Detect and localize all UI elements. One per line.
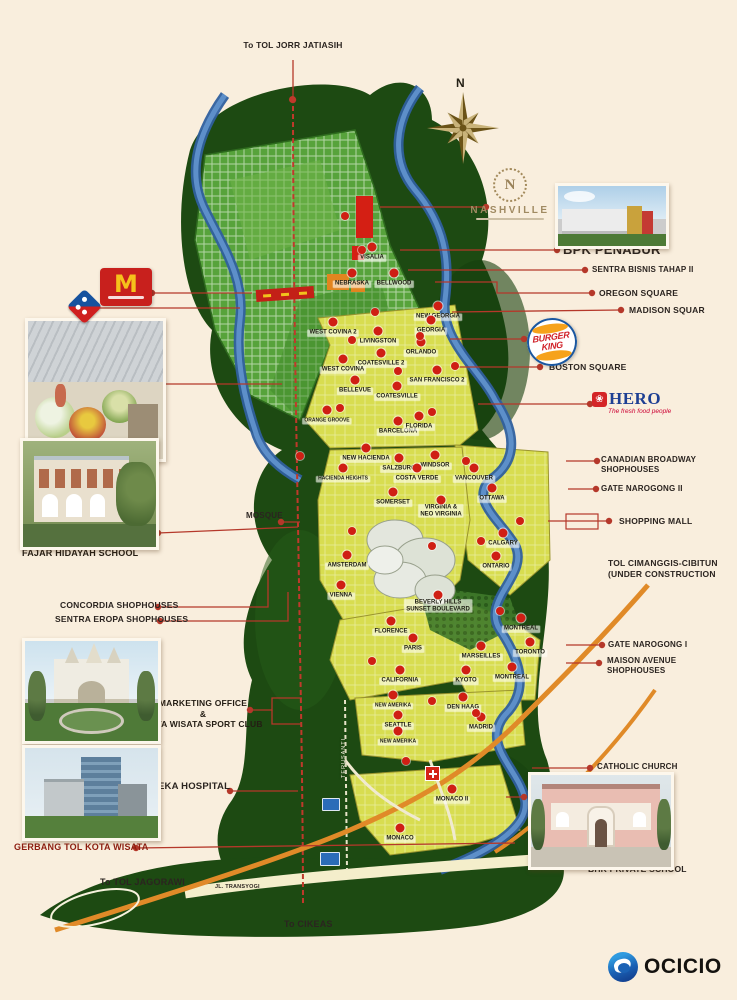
road-sign xyxy=(320,852,340,866)
callout-gerbang-tol: GERBANG TOL KOTA WISATA xyxy=(14,842,148,853)
callout-marketing-office: MARKETING OFFICE&KOTA WISATA SPORT CLUB xyxy=(143,698,262,730)
ocicio-logo: OCICIO xyxy=(608,952,722,982)
map-region-label: COATESVILLE xyxy=(374,394,420,401)
callout-sentra-eropa: SENTRA EROPA SHOPHOUSES xyxy=(55,614,188,625)
region-badge-icon xyxy=(434,302,443,311)
map-region-label: VIRGINIA &NEO VIRGINIA xyxy=(418,504,463,517)
map-region-label: FLORIDA xyxy=(404,424,435,431)
region-badge-icon xyxy=(368,243,377,252)
region-badge-icon xyxy=(329,318,338,327)
region-badge-icon xyxy=(416,332,424,340)
facility-cross-marker xyxy=(425,766,440,781)
fajar-hidayah-school-photo xyxy=(20,438,159,550)
callout-sentra-bisnis: SENTRA BISNIS TAHAP II xyxy=(592,265,694,275)
region-badge-icon xyxy=(437,496,446,505)
region-badge-icon xyxy=(499,529,508,538)
region-badge-icon xyxy=(470,464,479,473)
region-badge-icon xyxy=(394,417,403,426)
region-badge-icon xyxy=(433,366,442,375)
region-badge-icon xyxy=(526,638,535,647)
nashville-emblem-icon: N xyxy=(493,168,527,202)
nashville-wordmark: NASHVILLE xyxy=(455,205,565,216)
region-badge-icon xyxy=(428,542,436,550)
region-badge-icon xyxy=(488,484,497,493)
map-region-label: NEW AMERIKA xyxy=(373,703,413,709)
map-region-label: WINDSOR xyxy=(419,463,452,470)
region-badge-icon xyxy=(395,454,404,463)
region-badge-icon xyxy=(394,711,403,720)
map-region-label: NEW HACIENDA xyxy=(340,456,391,463)
terusan-road-label: TERUSANTI xyxy=(341,738,347,778)
compass-n-label: N xyxy=(456,76,465,90)
map-region-label: SOMERSET xyxy=(374,500,412,507)
region-badge-icon xyxy=(390,269,399,278)
callout-concordia: CONCORDIA SHOPHOUSES xyxy=(60,600,178,611)
map-region-label: VANCOUVER xyxy=(453,476,495,483)
masterplan-poster: To TOL JORR JATIASIHBPK PENABURSENTRA BI… xyxy=(0,0,737,1000)
callout-shopping-mall: SHOPPING MALL xyxy=(619,516,692,527)
map-region-label: MONACO xyxy=(384,836,415,843)
region-badge-icon xyxy=(517,614,526,623)
region-badge-icon xyxy=(348,269,357,278)
region-badge-icon xyxy=(394,727,403,736)
region-badge-icon xyxy=(428,408,436,416)
region-badge-icon xyxy=(371,308,379,316)
nashville-logo: N NASHVILLE xyxy=(455,168,565,220)
callout-eka-hospital: EKA HOSPITAL xyxy=(158,781,230,793)
road-sign xyxy=(322,798,340,811)
region-badge-icon xyxy=(427,316,436,325)
callout-madison-squar: MADISON SQUAR xyxy=(629,305,705,316)
region-badge-icon xyxy=(362,444,371,453)
bpk-penabur-photo xyxy=(555,183,669,249)
region-badge-icon xyxy=(415,412,424,421)
region-badge-icon xyxy=(348,336,356,344)
region-badge-icon xyxy=(296,452,304,460)
region-badge-icon xyxy=(341,212,349,220)
region-badge-icon xyxy=(336,404,344,412)
map-region-label: WEST COVINA xyxy=(320,367,366,374)
region-badge-icon xyxy=(389,691,398,700)
callout-jl-transyogi: JL. TRANSYOGI xyxy=(215,884,260,891)
region-badge-icon xyxy=(337,581,346,590)
callout-canadian-broadway: CANADIAN BROADWAYSHOPHOUSES xyxy=(601,455,696,475)
map-region-label: COSTA VERDE xyxy=(394,476,441,483)
callout-oregon-square: OREGON SQUARE xyxy=(599,288,678,299)
map-region-label: FLORENCE xyxy=(373,629,410,636)
callout-mosque: MOSQUE xyxy=(246,511,283,521)
map-region-label: VIENNA xyxy=(328,593,355,600)
map-region-label: BEVERLY HILLSSUNSET BOULEVARD xyxy=(404,599,472,612)
hero-flower-icon: ❀ xyxy=(592,392,607,407)
region-badge-icon xyxy=(477,642,486,651)
region-badge-icon xyxy=(428,697,436,705)
region-badge-icon xyxy=(389,488,398,497)
region-badge-icon xyxy=(396,666,405,675)
region-badge-icon xyxy=(448,785,457,794)
callout-to-cikeas: To CIKEAS xyxy=(284,919,333,930)
map-region-label: PARIS xyxy=(402,646,424,653)
region-badge-icon xyxy=(358,246,366,254)
region-badge-icon xyxy=(472,709,480,717)
region-badge-icon xyxy=(387,617,396,626)
map-region-label: SAN FRANCISCO 2 xyxy=(407,378,466,385)
callout-maison-avenue: MAISON AVENUESHOPHOUSES xyxy=(607,656,676,676)
region-badge-icon xyxy=(459,693,468,702)
callout-catholic-church: CATHOLIC CHURCH xyxy=(597,762,678,772)
region-badge-icon xyxy=(413,464,422,473)
map-region-label: LIVINGSTON xyxy=(358,339,399,346)
mcdonalds-logo: M xyxy=(100,268,152,306)
callout-gate-narogong-2: GATE NAROGONG II xyxy=(601,484,683,494)
region-badge-icon xyxy=(431,451,440,460)
region-badge-icon xyxy=(462,666,471,675)
callout-top-jorr: To TOL JORR JATIASIH xyxy=(243,40,342,51)
region-badge-icon xyxy=(394,367,402,375)
region-badge-icon xyxy=(492,552,501,561)
map-region-label: VISALIA xyxy=(358,255,386,262)
region-badge-icon xyxy=(339,355,348,364)
region-badge-icon xyxy=(508,663,517,672)
hero-logo: ❀ HERO The fresh food people xyxy=(592,389,671,415)
region-badge-icon xyxy=(374,327,383,336)
region-badge-icon xyxy=(368,657,376,665)
region-badge-icon xyxy=(351,376,360,385)
map-region-label: MADRID xyxy=(467,725,495,732)
map-region-label: ORLANDO xyxy=(404,350,438,357)
region-badge-icon xyxy=(462,457,470,465)
map-region-label: MONACO II xyxy=(434,797,470,804)
map-region-label: NEBRASKA xyxy=(333,281,371,288)
callout-gate-narogong-1: GATE NAROGONG I xyxy=(608,640,687,650)
region-badge-icon xyxy=(477,537,485,545)
region-badge-icon xyxy=(402,757,410,765)
region-badge-icon xyxy=(393,382,402,391)
map-region-label: ONTARIO xyxy=(480,564,511,571)
map-region-label: NEW GEORGIA xyxy=(414,314,462,321)
region-badge-icon xyxy=(516,517,524,525)
map-region-label: NEW AMERIKA xyxy=(378,739,418,745)
map-region-label: MARSEILLES xyxy=(460,654,503,661)
bhk-private-school-photo xyxy=(528,772,674,870)
mcdonalds-arches-icon: M xyxy=(114,275,138,294)
eka-hospital-photo xyxy=(22,745,161,841)
map-region-label: MONTREAL xyxy=(502,626,540,633)
map-region-label: AMSTERDAM xyxy=(326,563,369,570)
callout-to-jagorawi: To TOL JAGORAWI xyxy=(100,877,185,888)
map-region-label: KYOTO xyxy=(453,678,478,685)
road-pin xyxy=(289,96,296,103)
map-region-label: CALIFORNIA xyxy=(380,678,421,685)
region-badge-icon xyxy=(343,551,352,560)
map-region-label: TORONTO xyxy=(513,650,547,657)
region-badge-icon xyxy=(339,464,348,473)
marketing-office-photo xyxy=(22,638,161,744)
region-badge-icon xyxy=(323,406,332,415)
region-badge-icon xyxy=(434,591,443,600)
ocicio-icon xyxy=(608,952,638,982)
region-badge-icon xyxy=(348,527,356,535)
map-region-label: MONTREAL xyxy=(493,675,531,682)
region-badge-icon xyxy=(377,349,386,358)
region-badge-icon xyxy=(409,634,418,643)
map-region-label: CALGARY xyxy=(486,541,519,548)
region-badge-icon xyxy=(451,362,459,370)
map-region-label: ORANGE GROOVE xyxy=(302,418,351,424)
callout-tol-cimanggis: TOL CIMANGGIS-CIBITUN(UNDER CONSTRUCTION xyxy=(608,558,718,579)
map-region-label: BELLEVUE xyxy=(337,388,373,395)
region-badge-icon xyxy=(396,824,405,833)
map-region-label: BELLWOOD xyxy=(375,281,414,288)
region-badge-icon xyxy=(496,607,504,615)
map-region-label: OTTAWA xyxy=(477,496,506,503)
map-region-label: HACIENDA HEIGHTS xyxy=(316,476,370,482)
